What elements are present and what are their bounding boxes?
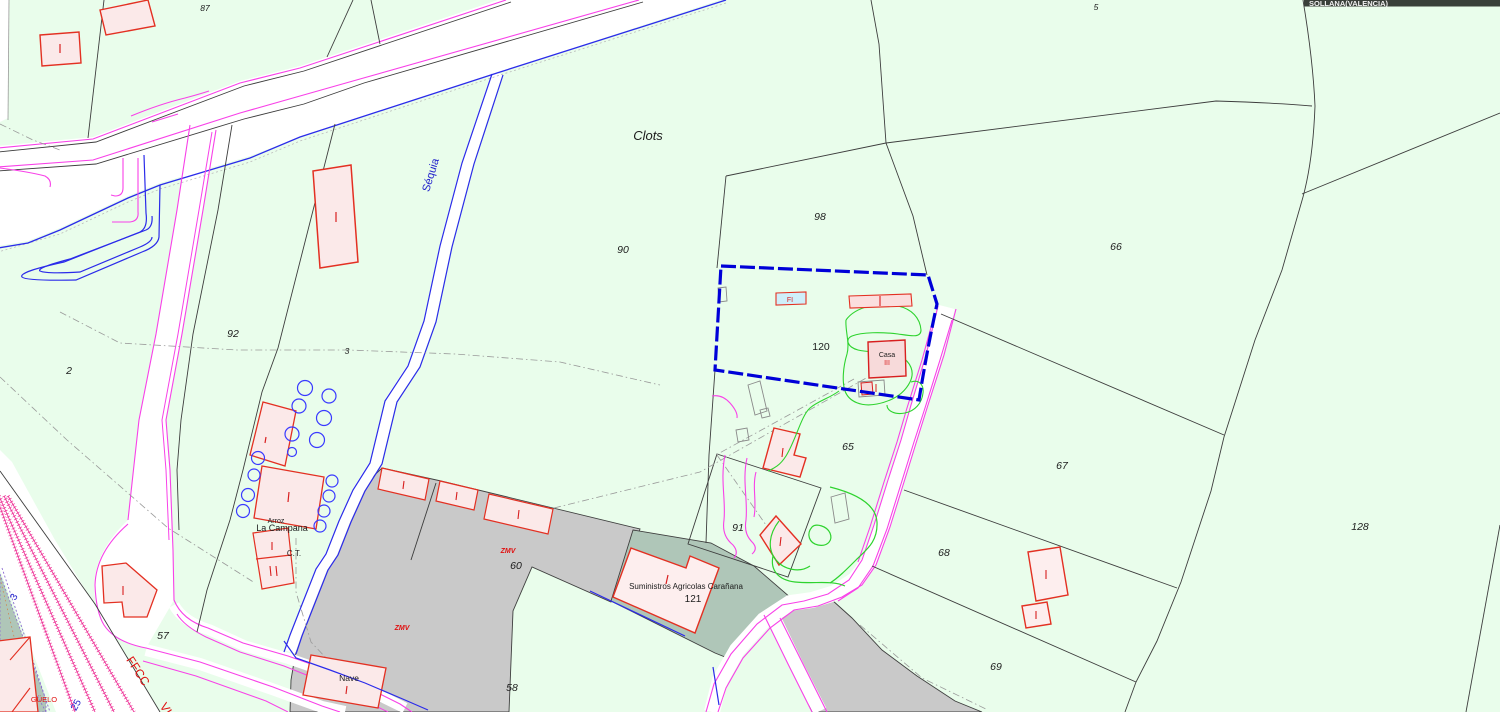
svg-text:58: 58 (506, 682, 518, 694)
svg-text:90: 90 (617, 244, 629, 256)
svg-text:La Campana: La Campana (256, 523, 308, 533)
svg-text:III: III (884, 360, 890, 367)
svg-text:91: 91 (732, 522, 744, 534)
svg-text:68: 68 (938, 547, 950, 559)
svg-text:FI: FI (787, 297, 793, 304)
svg-text:C.T.: C.T. (287, 549, 301, 558)
svg-text:SOLLANA(VALENCIA): SOLLANA(VALENCIA) (1309, 0, 1389, 8)
svg-text:120: 120 (812, 341, 830, 353)
svg-text:Nave: Nave (339, 673, 359, 683)
svg-text:60: 60 (510, 560, 522, 572)
svg-text:98: 98 (814, 211, 826, 223)
svg-text:3: 3 (345, 346, 350, 356)
svg-text:Suministros Agricolas Carañana: Suministros Agricolas Carañana (629, 582, 743, 591)
svg-text:65: 65 (842, 441, 854, 453)
svg-text:66: 66 (1110, 241, 1122, 253)
svg-text:57: 57 (157, 630, 170, 642)
svg-text:92: 92 (227, 328, 239, 340)
svg-text:121: 121 (685, 594, 702, 605)
svg-text:GÜELO: GÜELO (31, 695, 57, 704)
svg-text:ZMV: ZMV (500, 548, 517, 555)
svg-text:69: 69 (990, 661, 1002, 673)
svg-text:Clots: Clots (633, 128, 663, 143)
svg-text:5: 5 (1094, 2, 1099, 12)
svg-text:2: 2 (65, 365, 72, 377)
svg-text:Casa: Casa (879, 352, 895, 359)
svg-text:87: 87 (200, 3, 210, 13)
svg-text:ZMV: ZMV (394, 625, 411, 632)
svg-text:128: 128 (1351, 521, 1369, 533)
svg-text:67: 67 (1056, 460, 1069, 472)
